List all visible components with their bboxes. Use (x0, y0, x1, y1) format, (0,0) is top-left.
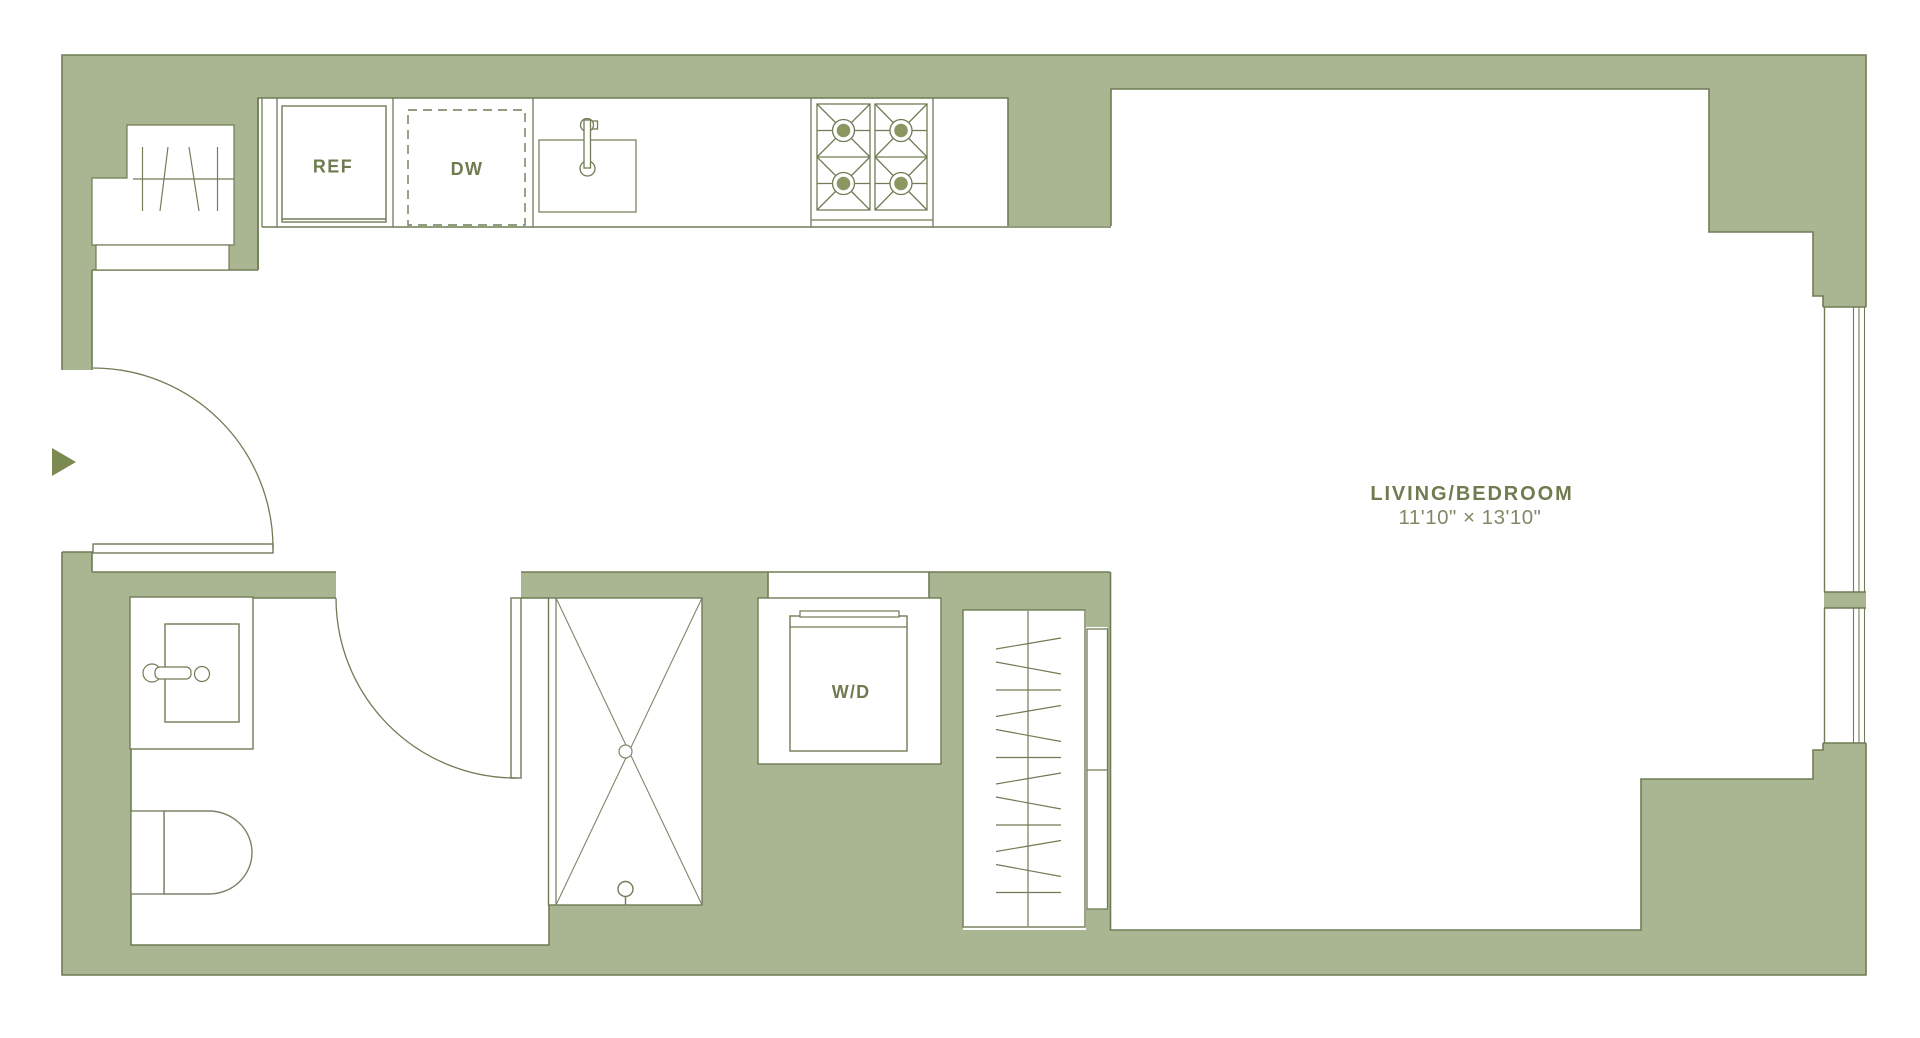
svg-text:DW: DW (451, 159, 484, 179)
svg-text:LIVING/BEDROOM: LIVING/BEDROOM (1370, 483, 1573, 505)
svg-text:W/D: W/D (832, 682, 871, 702)
svg-text:REF: REF (313, 157, 353, 177)
svg-text:11'10" × 13'10": 11'10" × 13'10" (1399, 506, 1542, 529)
